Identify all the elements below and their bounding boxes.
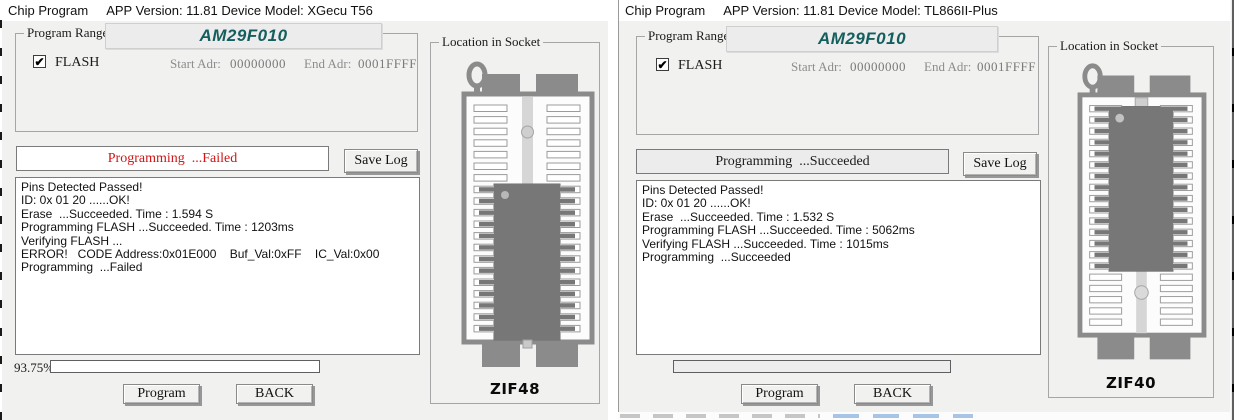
progress-percent-label: 93.75% xyxy=(14,360,54,376)
window-titlebar: Chip Program APP Version: 11.81 Device M… xyxy=(619,0,1230,21)
screen-edge-artifact-right xyxy=(1230,0,1234,420)
program-button[interactable]: Program xyxy=(123,384,200,404)
save-log-button[interactable]: Save Log xyxy=(344,149,418,173)
chip-name: AM29F010 xyxy=(818,29,906,49)
flash-label: FLASH xyxy=(55,55,99,71)
screen-edge-artifact-left xyxy=(0,0,2,420)
start-adr-value: 00000000 xyxy=(850,59,906,75)
blurred-link-fragment xyxy=(833,414,973,418)
chip-program-window-tl866: Chip Program APP Version: 11.81 Device M… xyxy=(618,0,1230,412)
chip-name-banner: AM29F010 xyxy=(105,23,382,49)
log-output[interactable]: Pins Detected Passed! ID: 0x 01 20 .....… xyxy=(636,180,1041,355)
location-in-socket-legend: Location in Socket xyxy=(439,35,543,49)
flash-label: FLASH xyxy=(678,58,722,74)
save-log-button[interactable]: Save Log xyxy=(963,152,1037,176)
flash-checkbox[interactable]: ✔ xyxy=(656,58,669,71)
chip-name: AM29F010 xyxy=(199,26,287,46)
location-in-socket-legend: Location in Socket xyxy=(1057,39,1161,53)
checkmark-icon: ✔ xyxy=(657,60,667,70)
progress-bar xyxy=(50,360,320,373)
log-output[interactable]: Pins Detected Passed! ID: 0x 01 20 .....… xyxy=(15,177,420,355)
window-titlebar: Chip Program APP Version: 11.81 Device M… xyxy=(2,0,608,21)
status-message: Programming ...Succeeded xyxy=(636,149,949,174)
window-title: Chip Program xyxy=(8,3,88,18)
end-adr-label: End Adr: xyxy=(304,56,351,72)
progress-bar xyxy=(673,360,951,373)
screenshot-root: Chip Program APP Version: 11.81 Device M… xyxy=(0,0,1234,420)
end-adr-value: 0001FFFF xyxy=(358,56,417,72)
zif-socket-label: ZIF40 xyxy=(1048,374,1214,392)
blurred-text-fragment xyxy=(620,414,820,418)
window-title: Chip Program xyxy=(625,3,705,18)
end-adr-label: End Adr: xyxy=(924,59,971,75)
program-button[interactable]: Program xyxy=(741,384,818,404)
program-range-legend: Program Range xyxy=(645,29,732,43)
background-page-fragment xyxy=(618,412,1230,420)
program-range-legend: Program Range xyxy=(24,26,111,40)
end-adr-value: 0001FFFF xyxy=(977,59,1036,75)
chip-name-banner: AM29F010 xyxy=(726,26,998,52)
zif-socket-graphic xyxy=(452,58,602,378)
back-button[interactable]: BACK xyxy=(236,384,313,404)
zif-socket-label: ZIF48 xyxy=(430,380,600,398)
start-adr-label: Start Adr: xyxy=(791,59,842,75)
flash-checkbox[interactable]: ✔ xyxy=(33,55,46,68)
start-adr-value: 00000000 xyxy=(230,56,286,72)
status-message: Programming ...Failed xyxy=(16,146,329,171)
checkmark-icon: ✔ xyxy=(34,57,44,67)
back-button[interactable]: BACK xyxy=(854,384,931,404)
start-adr-label: Start Adr: xyxy=(170,56,221,72)
app-version-info: APP Version: 11.81 Device Model: XGecu T… xyxy=(106,3,373,18)
chip-program-window-t56: Chip Program APP Version: 11.81 Device M… xyxy=(2,0,608,420)
app-version-info: APP Version: 11.81 Device Model: TL866II… xyxy=(723,3,998,18)
zif-socket-graphic xyxy=(1066,60,1216,370)
